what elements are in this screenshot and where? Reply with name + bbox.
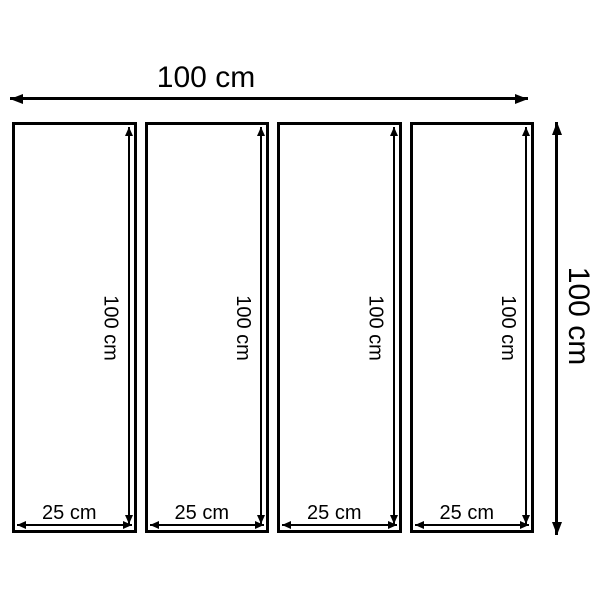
panel-2-height-arrow [260,127,262,524]
panel-3-height-arrow [393,127,395,524]
overall-height-dimension-arrow [555,122,558,535]
panel-1-width-label: 25 cm [15,503,124,523]
overall-width-label: 100 cm [157,61,255,94]
panel-1-height-arrow [128,127,130,524]
panel-4-width-arrow [415,524,530,526]
panel-1-width-arrow [17,524,132,526]
panel-4: 100 cm 25 cm [410,122,535,533]
panel-3-height-label: 100 cm [366,295,386,361]
overall-width-dimension-arrow [10,97,528,100]
panel-3-width-label: 25 cm [280,503,389,523]
panel-1: 100 cm 25 cm [12,122,137,533]
panel-4-height-label: 100 cm [498,295,518,361]
panel-4-height-arrow [525,127,527,524]
panel-2-width-arrow [150,524,265,526]
panel-2-height-label: 100 cm [233,295,253,361]
dimension-diagram: 100 cm 100 cm 100 cm 25 cm 100 cm 25 cm … [0,0,600,600]
panel-2-width-label: 25 cm [148,503,257,523]
panel-2: 100 cm 25 cm [145,122,270,533]
panel-row: 100 cm 25 cm 100 cm 25 cm 100 cm 25 cm 1… [12,122,534,533]
overall-height-label: 100 cm [562,267,595,365]
panel-4-width-label: 25 cm [413,503,522,523]
panel-1-height-label: 100 cm [101,295,121,361]
panel-3: 100 cm 25 cm [277,122,402,533]
panel-3-width-arrow [282,524,397,526]
